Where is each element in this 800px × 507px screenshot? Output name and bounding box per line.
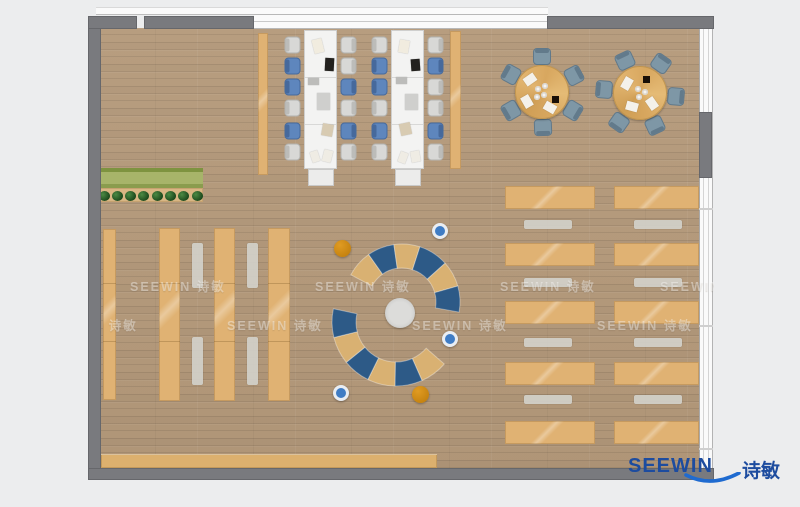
wall-left — [88, 16, 101, 479]
watermark-text: SEEWIN 诗敏 — [227, 315, 323, 334]
wall-bottom — [88, 468, 714, 480]
watermark-text: SEEWIN 诗敏 — [597, 315, 693, 334]
watermark-text: SEEWIN 诗敏 — [660, 276, 714, 295]
watermark-text: SEEWIN 诗敏 — [130, 276, 226, 295]
wall-right-mid — [699, 112, 712, 178]
watermark-text: SEEWIN 诗敏 — [315, 276, 411, 295]
seewin-logo: SEEWIN 诗敏 — [628, 452, 800, 494]
wall-top-a — [88, 16, 137, 29]
floorplan: SEEWIN 诗敏SEEWIN 诗敏SEEWIN 诗敏SEEWIN 诗敏SEEW… — [0, 0, 800, 507]
wall-top-b — [144, 16, 254, 29]
logo-swoosh-icon — [684, 472, 742, 486]
watermark-text: SEEWIN 诗敏 — [412, 315, 508, 334]
watermark-layer: SEEWIN 诗敏SEEWIN 诗敏SEEWIN 诗敏SEEWIN 诗敏SEEW… — [88, 16, 714, 479]
wall-top-c — [547, 16, 714, 29]
watermark-text: SEEWIN 诗敏 — [500, 276, 596, 295]
logo-text-zh: 诗敏 — [742, 456, 780, 483]
floorplan-canvas: SEEWIN 诗敏SEEWIN 诗敏SEEWIN 诗敏SEEWIN 诗敏SEEW… — [0, 0, 800, 507]
